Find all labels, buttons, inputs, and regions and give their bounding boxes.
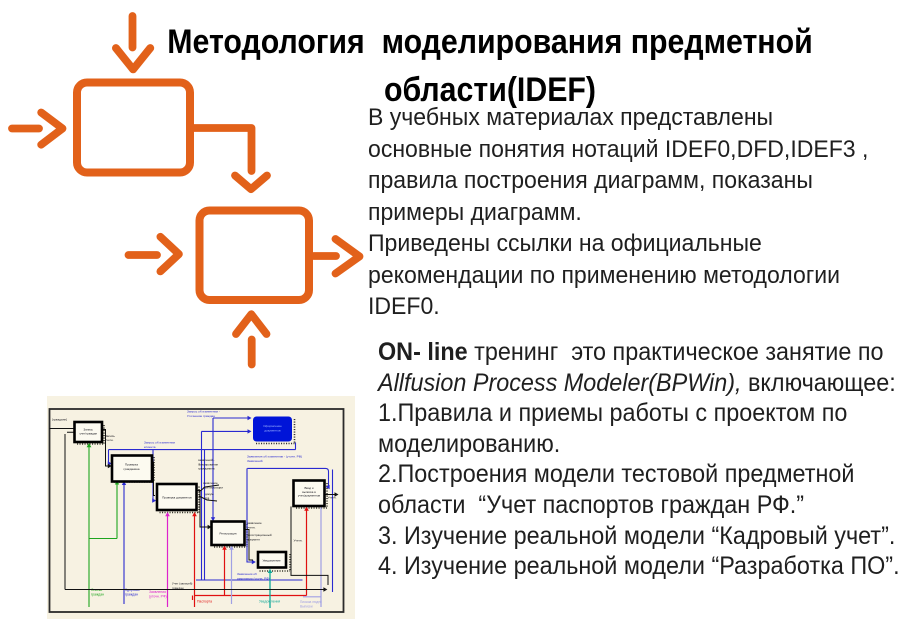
svg-text:Заявления: Заявления — [149, 590, 166, 594]
svg-text:Проверка документов: Проверка документов — [162, 496, 192, 500]
svg-text:Регистрация: Регистрация — [220, 532, 237, 536]
svg-text:Оформление: Оформление — [263, 424, 282, 428]
svg-text:Запрос об изменении -: Запрос об изменении - — [187, 410, 220, 414]
svg-text:Выписки: Выписки — [300, 604, 313, 608]
svg-text:учетн.: учетн. — [105, 438, 114, 442]
svg-text:документ: документ — [247, 537, 261, 541]
svg-text:граждан: граждан — [125, 593, 138, 597]
svg-text:учетн.: учетн. — [247, 525, 256, 529]
svg-text:Заявлений: Заявлений — [247, 459, 263, 463]
svg-text:Уведомление: Уведомление — [262, 559, 281, 563]
svg-text:Паспорта: Паспорта — [197, 600, 212, 604]
svg-text:изменении (уточн. РФ): изменении (уточн. РФ) — [237, 576, 270, 580]
svg-text:клиента: клиента — [144, 445, 156, 449]
svg-text:[граждане]: [граждане] — [52, 418, 67, 422]
svg-text:Уточнение граждан: Уточнение граждан — [187, 414, 215, 418]
svg-text:Учетн.: Учетн. — [328, 496, 337, 500]
svg-text:документов: документов — [264, 429, 281, 433]
svg-text:Учетн.: Учетн. — [294, 539, 303, 543]
svg-text:гражданина: гражданина — [124, 467, 140, 471]
svg-text:учет/граждан: учет/граждан — [79, 432, 97, 436]
svg-text:о регистрации: о регистрации — [203, 485, 223, 489]
svg-text:Проверка: Проверка — [125, 463, 138, 467]
svg-text:Заявления об изменении - (уточ: Заявления об изменении - (уточн. РФ) — [247, 455, 302, 459]
svg-text:(уточн. РФ): (уточн. РФ) — [149, 595, 167, 599]
svg-text:гражданина: гражданина — [198, 467, 215, 471]
svg-text:граждан: граждан — [172, 586, 184, 590]
svg-text:учет/документов: учет/документов — [298, 494, 321, 498]
svg-text:РФ: РФ — [205, 496, 210, 500]
svg-text:Уведомления: Уведомления — [259, 600, 280, 604]
svg-text:граждан: граждан — [91, 593, 104, 597]
